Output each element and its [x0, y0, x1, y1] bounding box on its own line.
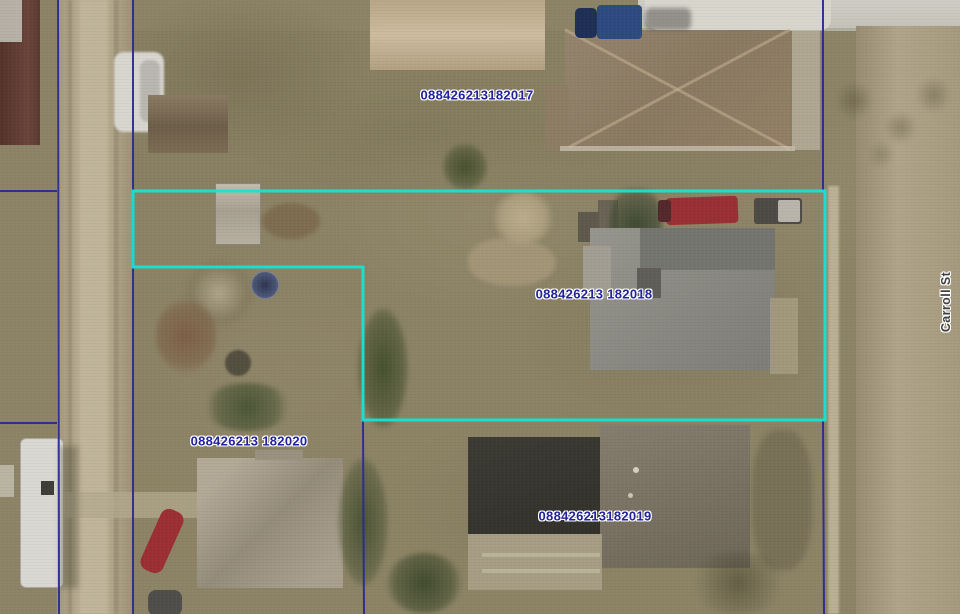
parcel-label-182019: 088426213182019	[539, 509, 652, 524]
parcel-line-mid-bottom	[363, 420, 364, 614]
parcel-line-carroll-bottom	[823, 420, 824, 614]
parcel-line-west-road	[58, 0, 59, 614]
street-label-carroll-st: Carroll St	[939, 272, 953, 332]
aerial-map-canvas[interactable]: 088426213182017 088426213 182018 0884262…	[0, 0, 960, 614]
parcel-label-182018: 088426213 182018	[536, 287, 653, 302]
parcel-label-182020: 088426213 182020	[191, 434, 308, 449]
selected-parcel-outline	[133, 191, 825, 420]
parcel-label-182017: 088426213182017	[421, 88, 534, 103]
